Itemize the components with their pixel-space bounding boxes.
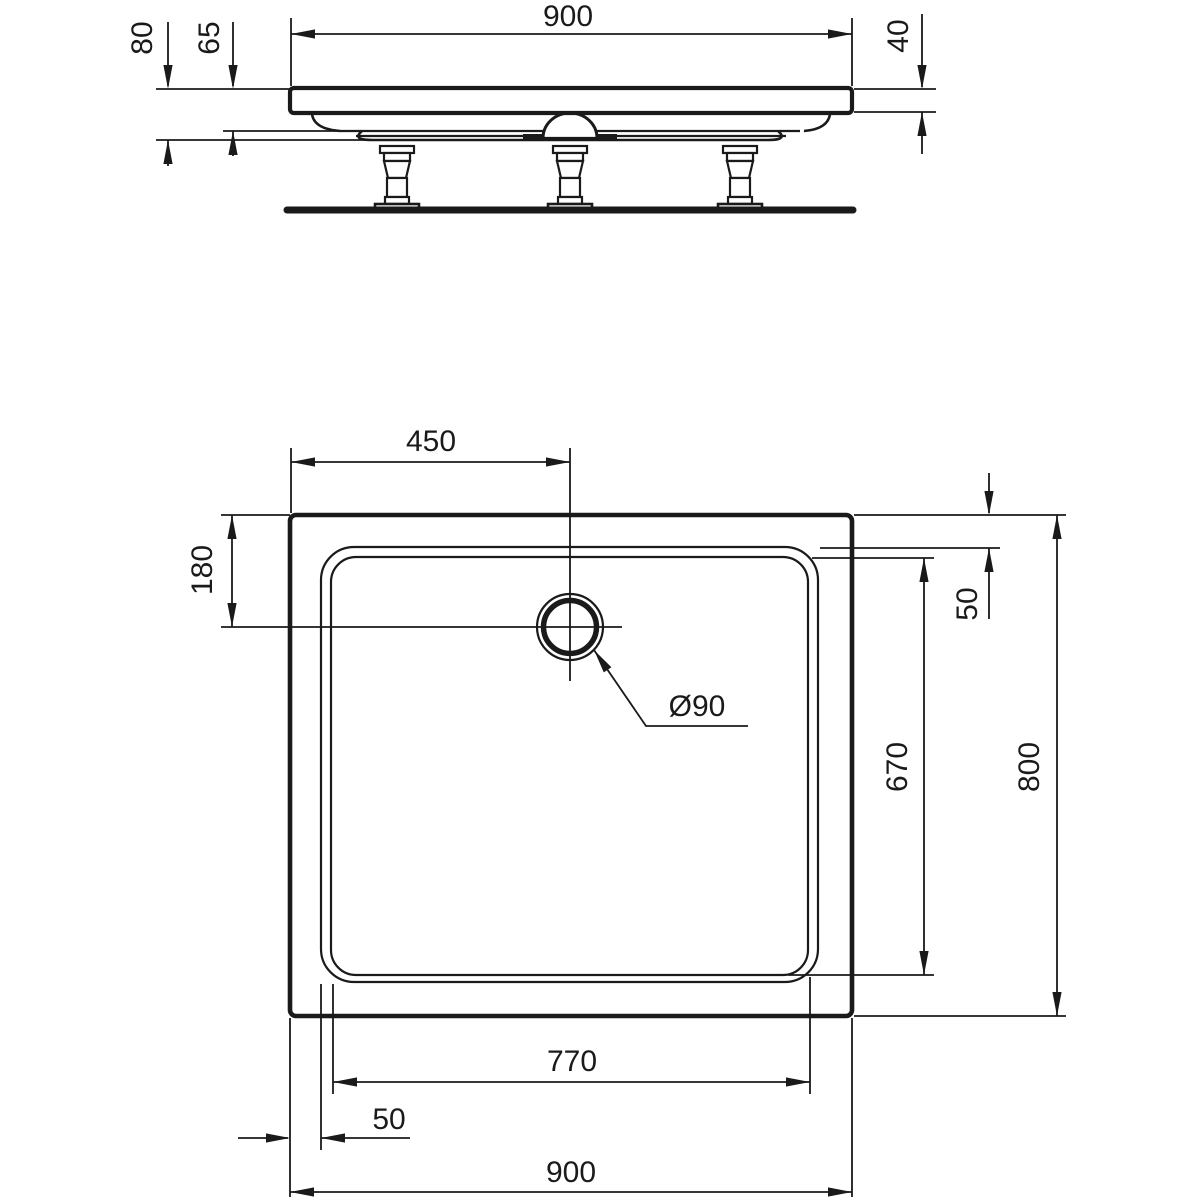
leg-column: [387, 178, 407, 197]
shower-tray-technical-drawing: 900 80 65 40: [0, 0, 1200, 1200]
dim-plan-rim-inset-left: 50: [238, 1103, 410, 1143]
rim-curve-right: [804, 114, 830, 131]
side-view: 900 80 65 40: [126, 0, 936, 210]
arrowhead-up: [919, 558, 928, 582]
arrowhead-up: [163, 140, 172, 164]
dim-side-rim-thickness: 40: [854, 14, 936, 154]
dim-label-180: 180: [186, 545, 219, 595]
arrowhead-left: [291, 457, 315, 466]
leg-upper-collar: [557, 153, 583, 161]
arrowhead-down: [984, 491, 993, 515]
dim-label-50-bottom: 50: [372, 1103, 405, 1136]
arrowhead-down: [917, 65, 926, 89]
dim-side-total-height: 80: [126, 21, 173, 166]
tray-side-profile: [290, 88, 852, 141]
support-leg-left: [375, 146, 419, 210]
arrowhead-right: [828, 1187, 852, 1196]
dim-label-800: 800: [1013, 742, 1046, 792]
leg-column: [560, 178, 580, 197]
leg-upper-collar: [384, 153, 410, 161]
leg-taper: [384, 161, 410, 178]
drain-diameter-leader: Ø90: [594, 650, 748, 726]
dim-side-overall-width: 900: [291, 0, 852, 86]
dim-label-40: 40: [882, 19, 915, 52]
dim-plan-rim-inset-top: 50: [951, 473, 994, 621]
dim-label-80: 80: [126, 21, 159, 54]
leg-column: [730, 178, 750, 197]
dim-label-50-right: 50: [951, 587, 984, 620]
arrowhead-down: [228, 65, 237, 89]
dim-label-drain-diameter: Ø90: [669, 690, 726, 723]
arrowhead-right: [828, 29, 852, 38]
dim-plan-overall-width: 900: [290, 1156, 852, 1197]
rim-curve-left: [312, 114, 340, 131]
dim-label-450: 450: [406, 425, 456, 458]
arrowhead-down: [1052, 992, 1061, 1016]
arrowhead-left: [333, 1077, 357, 1086]
dim-label-65: 65: [193, 21, 226, 54]
arrowhead-up: [228, 131, 237, 155]
arrowhead-up: [227, 515, 236, 539]
leg-taper: [557, 161, 583, 178]
arrowhead-up: [917, 112, 926, 136]
leader-arrowhead: [594, 650, 611, 672]
arrowhead-down: [227, 603, 236, 627]
technical-drawing-page: 900 80 65 40: [0, 0, 1200, 1200]
arrowhead-right: [546, 457, 570, 466]
dim-label-900-top: 900: [543, 0, 593, 33]
arrowhead-left: [291, 29, 315, 38]
support-leg-center: [548, 146, 592, 210]
arrowhead-down: [919, 951, 928, 975]
dim-label-770: 770: [547, 1045, 597, 1078]
dim-plan-basin-length: 670: [881, 558, 929, 975]
arrowhead-left: [290, 1187, 314, 1196]
tray-slab: [290, 88, 852, 113]
support-leg-right: [718, 146, 762, 210]
leg-upper-collar: [727, 153, 753, 161]
plan-view: 450 180 50 670 800: [186, 425, 1066, 1197]
dim-label-900-bottom: 900: [546, 1156, 596, 1189]
dim-label-670: 670: [881, 742, 914, 792]
dim-plan-overall-depth: 800: [1013, 515, 1062, 1016]
arrowhead-right: [266, 1133, 290, 1142]
arrowhead-up: [984, 548, 993, 572]
dim-plan-basin-width: 770: [333, 1045, 810, 1087]
arrowhead-right: [786, 1077, 810, 1086]
arrowhead-left: [321, 1133, 345, 1142]
drain: [221, 448, 622, 681]
drain-dome: [543, 113, 597, 138]
leg-taper: [727, 161, 753, 178]
dim-plan-drain-offset-y: 180: [186, 515, 237, 627]
arrowhead-down: [163, 65, 172, 89]
tray-outline: [290, 515, 852, 1016]
arrowhead-up: [1052, 515, 1061, 539]
dim-plan-drain-offset-x: 450: [291, 425, 570, 513]
